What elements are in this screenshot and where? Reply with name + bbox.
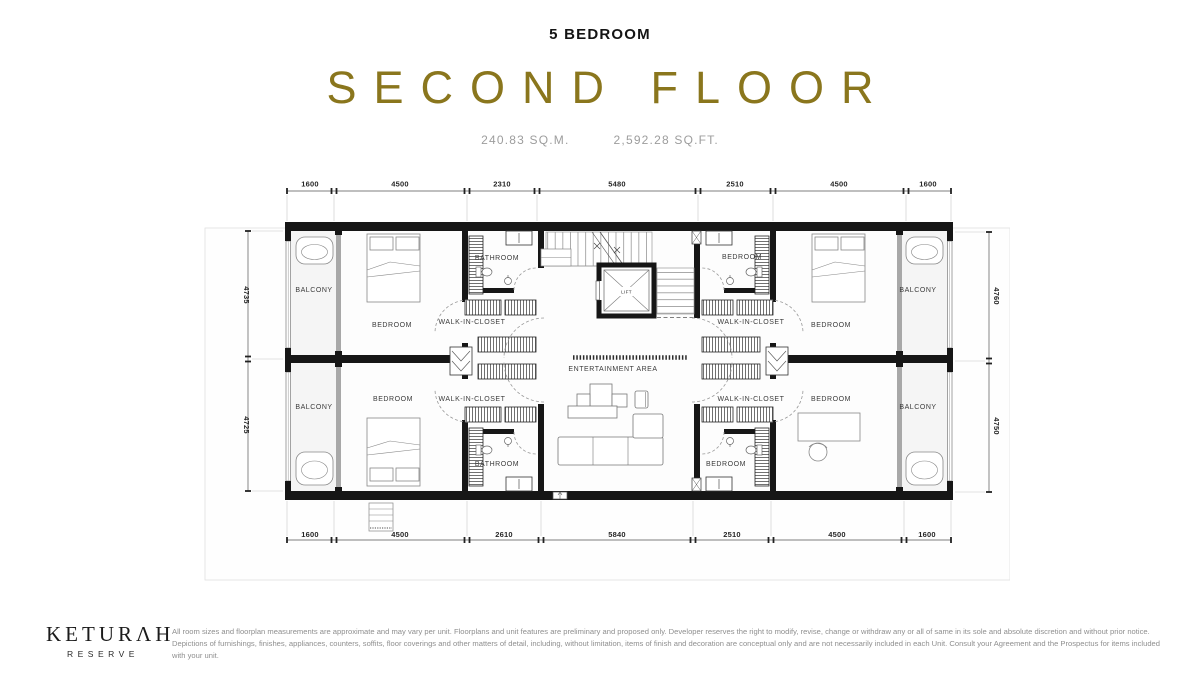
area-sqm: 240.83 SQ.M. — [481, 133, 569, 147]
floor-plan-svg: 1600 4500 2310 5480 2510 4500 1600 1600 … — [180, 165, 1010, 585]
room-label-bedroom-tl: BEDROOM — [372, 322, 412, 329]
room-label-bathroom-tl: BATHROOM — [475, 255, 519, 262]
room-label-balcony-tl: BALCONY — [295, 287, 332, 294]
unit-type-title: 5 BEDROOM — [0, 26, 1200, 43]
room-label-balcony-tr: BALCONY — [899, 287, 936, 294]
room-label-wic-tl: WALK-IN-CLOSET — [439, 319, 506, 326]
room-label-bathroom-bl: BATHROOM — [475, 461, 519, 468]
room-label-bedroom-br: BEDROOM — [811, 396, 851, 403]
room-label-bedroom-tr: BEDROOM — [811, 322, 851, 329]
disclaimer-line-2: Depictions of furnishings, finishes, app… — [172, 638, 1172, 662]
dim-top-2: 4500 — [391, 180, 409, 189]
dimension-labels-top: 1600 4500 2310 5480 2510 4500 1600 — [301, 180, 937, 189]
room-label-bedroom-br-small: BEDROOM — [706, 461, 746, 468]
toilet-icon — [746, 267, 762, 277]
brand-subtitle: RESERVE — [46, 649, 160, 659]
dim-top-1: 1600 — [301, 180, 319, 189]
dim-left-1: 4735 — [242, 286, 251, 304]
room-label-wic-br: WALK-IN-CLOSET — [718, 396, 785, 403]
floor-plan: 1600 4500 2310 5480 2510 4500 1600 1600 … — [180, 165, 1010, 585]
dim-bottom-7: 1600 — [918, 530, 936, 539]
dim-bottom-6: 4500 — [828, 530, 846, 539]
dim-left-2: 4725 — [242, 416, 251, 434]
lift-label: LIFT — [621, 290, 632, 295]
room-label-entertainment: ENTERTAINMENT AREA — [568, 366, 657, 373]
area-sqft: 2,592.28 SQ.FT. — [614, 133, 719, 147]
room-label-bedroom-tr-small: BEDROOM — [722, 254, 762, 261]
dim-top-3: 2310 — [493, 180, 511, 189]
page-title: SECOND FLOOR — [0, 62, 1200, 114]
brand-logo: KETURΛH RESERVE — [46, 622, 160, 659]
toilet-icon — [746, 445, 762, 455]
dim-bottom-1: 1600 — [301, 530, 319, 539]
dim-bottom-5: 2510 — [723, 530, 741, 539]
room-label-balcony-bl: BALCONY — [295, 404, 332, 411]
bed-icon — [367, 234, 420, 302]
brand-name: KETURΛH — [46, 622, 160, 647]
dim-top-6: 4500 — [830, 180, 848, 189]
lift-shaft: LIFT — [596, 265, 654, 316]
armchair-icon — [635, 391, 648, 408]
balcony-chair-icon — [906, 237, 943, 264]
dim-bottom-2: 4500 — [391, 530, 409, 539]
toilet-icon — [476, 445, 492, 455]
dim-right-2: 4750 — [992, 417, 1001, 435]
dim-right-1: 4760 — [992, 287, 1001, 305]
disclaimer-line-1: All room sizes and floorplan measurement… — [172, 626, 1172, 638]
dim-bottom-3: 2610 — [495, 530, 513, 539]
balcony-chair-icon — [296, 237, 333, 264]
room-label-wic-bl: WALK-IN-CLOSET — [439, 396, 506, 403]
dim-top-4: 5480 — [608, 180, 626, 189]
bed-icon — [367, 418, 420, 486]
dim-top-7: 1600 — [919, 180, 937, 189]
bed-icon — [812, 234, 865, 302]
room-label-wic-tr: WALK-IN-CLOSET — [718, 319, 785, 326]
room-label-balcony-br: BALCONY — [899, 404, 936, 411]
balcony-sofa-icon — [296, 452, 333, 485]
toilet-icon — [476, 267, 492, 277]
planter-icon — [369, 503, 393, 531]
disclaimer-text: All room sizes and floorplan measurement… — [172, 626, 1172, 662]
balcony-sofa-icon — [906, 452, 943, 485]
area-summary: 240.83 SQ.M. 2,592.28 SQ.FT. — [0, 133, 1200, 147]
page-title-text: SECOND FLOOR — [326, 62, 890, 113]
room-label-bedroom-bl: BEDROOM — [373, 396, 413, 403]
dim-bottom-4: 5840 — [608, 530, 626, 539]
dimension-labels-bottom: 1600 4500 2610 5840 2510 4500 1600 — [301, 530, 936, 539]
dim-top-5: 2510 — [726, 180, 744, 189]
